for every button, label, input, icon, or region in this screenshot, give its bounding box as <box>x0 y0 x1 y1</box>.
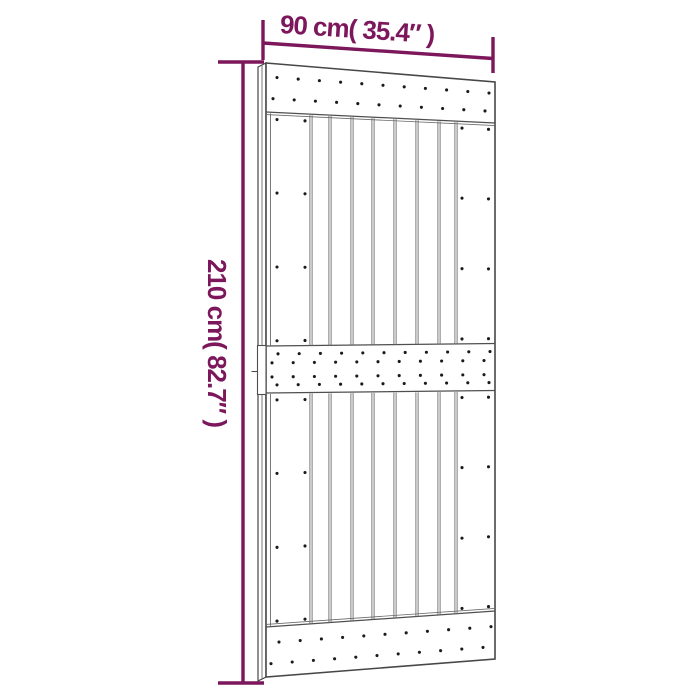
middle-batten-side-tab <box>252 346 267 395</box>
nail-dot <box>303 618 306 621</box>
nail-dot <box>277 641 280 644</box>
door-face <box>266 63 495 677</box>
nail-dot <box>303 398 306 401</box>
nail-dot <box>275 398 278 401</box>
nail-dot <box>381 84 384 87</box>
nail-dot <box>461 373 464 376</box>
nail-dot <box>488 350 491 353</box>
nail-dot <box>487 267 490 270</box>
height-dimension-label: 210 cm( 82.7″ ) <box>201 259 231 427</box>
nail-dot <box>487 605 490 608</box>
nail-dot <box>275 76 278 79</box>
nail-dot <box>298 352 301 355</box>
nail-dot <box>335 101 338 104</box>
nail-dot <box>270 361 273 364</box>
nail-dot <box>355 360 358 363</box>
nail-dot <box>425 351 428 354</box>
nail-dot <box>334 375 337 378</box>
nail-dot <box>376 360 379 363</box>
nail-dot <box>377 103 380 106</box>
nail-dot <box>487 337 490 340</box>
nail-dot <box>275 265 278 268</box>
nail-dot <box>314 100 317 103</box>
nail-dot <box>303 339 306 342</box>
nail-dot <box>460 466 463 469</box>
nail-dot <box>312 659 315 662</box>
nail-dot <box>313 375 316 378</box>
nail-dot <box>487 197 490 200</box>
nail-dot <box>487 381 490 384</box>
nail-dot <box>418 651 421 654</box>
nail-dot <box>482 359 485 362</box>
nail-dot <box>303 544 306 547</box>
nail-dot <box>303 471 306 474</box>
nail-dot <box>275 620 278 623</box>
nail-dot <box>339 383 342 386</box>
nail-dot <box>383 633 386 636</box>
nail-dot <box>291 660 294 663</box>
nail-dot <box>355 374 358 377</box>
nail-dot <box>361 351 364 354</box>
nail-dot <box>299 639 302 642</box>
nail-dot <box>275 191 278 194</box>
nail-dot <box>340 352 343 355</box>
nail-dot <box>320 637 323 640</box>
nail-dot <box>360 382 363 385</box>
nail-dot <box>446 350 449 353</box>
nail-dot <box>275 118 278 121</box>
nail-dot <box>487 91 490 94</box>
nail-dot <box>334 361 337 364</box>
nail-dot <box>313 361 316 364</box>
nail-dot <box>482 373 485 376</box>
nail-dot <box>419 374 422 377</box>
nail-dot <box>460 267 463 270</box>
nail-dot <box>461 359 464 362</box>
nail-dot <box>468 627 471 630</box>
nail-dot <box>292 361 295 364</box>
nail-dot <box>339 81 342 84</box>
nail-dot <box>341 636 344 639</box>
nail-dot <box>487 535 490 538</box>
nail-dot <box>354 656 357 659</box>
nail-dot <box>424 382 427 385</box>
nail-dot <box>276 352 279 355</box>
nail-dot <box>269 662 272 665</box>
nail-dot <box>398 374 401 377</box>
nail-dot <box>439 649 442 652</box>
nail-dot <box>297 383 300 386</box>
nail-dot <box>403 85 406 88</box>
nail-dot <box>319 352 322 355</box>
nail-dot <box>398 360 401 363</box>
nail-dot <box>397 652 400 655</box>
nail-dot <box>403 382 406 385</box>
nail-dot <box>483 109 486 112</box>
nail-dot <box>293 98 296 101</box>
door-technical-drawing <box>0 0 700 700</box>
nail-dot <box>333 657 336 660</box>
nail-dot <box>445 381 448 384</box>
nail-dot <box>362 634 365 637</box>
nail-dot <box>270 375 273 378</box>
nail-dot <box>420 106 423 109</box>
nail-dot <box>489 625 492 628</box>
dimension-diagram: 90 cm( 35.4″ ) 210 cm( 82.7″ ) <box>0 0 700 700</box>
nail-dot <box>440 374 443 377</box>
nail-dot <box>419 360 422 363</box>
nail-dot <box>399 104 402 107</box>
nail-dot <box>297 78 300 81</box>
nail-dot <box>275 383 278 386</box>
nail-dot <box>381 382 384 385</box>
nail-dot <box>462 108 465 111</box>
nail-dot <box>467 350 470 353</box>
nail-dot <box>460 127 463 130</box>
nail-dot <box>460 396 463 399</box>
nail-dot <box>487 396 490 399</box>
nail-dot <box>460 337 463 340</box>
nail-dot <box>460 197 463 200</box>
nail-dot <box>303 192 306 195</box>
nail-dot <box>424 87 427 90</box>
nail-dot <box>275 546 278 549</box>
nail-dot <box>271 97 274 100</box>
nail-dot <box>318 79 321 82</box>
nail-dot <box>275 339 278 342</box>
nail-dot <box>441 107 444 110</box>
nail-dot <box>303 119 306 122</box>
nail-dot <box>440 359 443 362</box>
nail-dot <box>445 88 448 91</box>
nail-dot <box>382 351 385 354</box>
nail-dot <box>405 631 408 634</box>
nail-dot <box>447 628 450 631</box>
nail-dot <box>426 630 429 633</box>
nail-dot <box>460 537 463 540</box>
nail-dot <box>318 383 321 386</box>
nail-dot <box>356 102 359 105</box>
nail-dot <box>466 381 469 384</box>
nail-dot <box>487 128 490 131</box>
nail-dot <box>487 465 490 468</box>
nail-dot <box>466 90 469 93</box>
nail-dot <box>292 375 295 378</box>
nail-dot <box>303 266 306 269</box>
nail-dot <box>376 374 379 377</box>
nail-dot <box>360 82 363 85</box>
nail-dot <box>460 607 463 610</box>
nail-dot <box>275 472 278 475</box>
nail-dot <box>481 646 484 649</box>
nail-dot <box>460 648 463 651</box>
nail-dot <box>404 351 407 354</box>
nail-dot <box>375 654 378 657</box>
